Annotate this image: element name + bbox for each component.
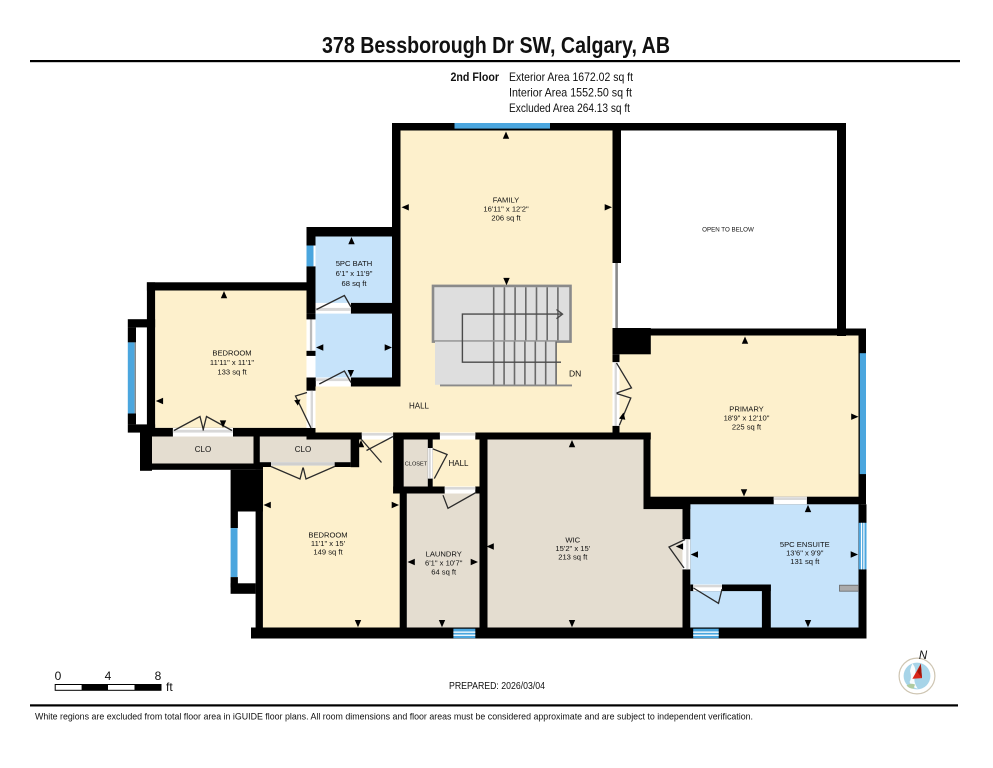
- svg-text:BEDROOM: BEDROOM: [212, 349, 251, 358]
- svg-text:4: 4: [105, 669, 112, 683]
- svg-text:0: 0: [55, 669, 62, 683]
- svg-text:133 sq ft: 133 sq ft: [217, 368, 247, 377]
- svg-text:CLOSET: CLOSET: [405, 462, 428, 468]
- svg-text:6'1" x 10'7": 6'1" x 10'7": [425, 559, 463, 568]
- svg-text:DN: DN: [569, 369, 581, 379]
- svg-text:HALL: HALL: [409, 402, 430, 411]
- svg-text:Excluded Area 264.13 sq ft: Excluded Area 264.13 sq ft: [509, 101, 631, 115]
- svg-text:CLO: CLO: [195, 445, 211, 454]
- svg-text:OPEN TO BELOW: OPEN TO BELOW: [702, 227, 754, 234]
- svg-text:2nd Floor: 2nd Floor: [451, 70, 500, 84]
- svg-text:ft: ft: [166, 680, 173, 694]
- svg-text:213 sq ft: 213 sq ft: [558, 553, 588, 562]
- svg-text:149 sq ft: 149 sq ft: [313, 548, 343, 557]
- svg-text:5PC BATH: 5PC BATH: [336, 259, 373, 268]
- svg-text:131 sq ft: 131 sq ft: [790, 557, 820, 566]
- svg-text:Interior Area 1552.50 sq ft: Interior Area 1552.50 sq ft: [509, 86, 633, 100]
- svg-text:White regions are excluded fro: White regions are excluded from total fl…: [35, 712, 753, 722]
- svg-text:8: 8: [155, 669, 162, 683]
- svg-text:PRIMARY: PRIMARY: [729, 405, 763, 414]
- svg-text:CLO: CLO: [295, 445, 311, 454]
- svg-text:18'9" x 12'10": 18'9" x 12'10": [724, 414, 770, 423]
- svg-text:11'11" x 11'1": 11'11" x 11'1": [210, 358, 254, 367]
- svg-text:225 sq ft: 225 sq ft: [732, 423, 762, 432]
- svg-text:PREPARED: 2026/03/04: PREPARED: 2026/03/04: [449, 680, 545, 692]
- svg-text:FAMILY: FAMILY: [493, 196, 519, 205]
- svg-text:HALL: HALL: [448, 459, 469, 468]
- svg-text:68 sq ft: 68 sq ft: [342, 279, 368, 288]
- svg-text:378 Bessborough Dr SW, Calgary: 378 Bessborough Dr SW, Calgary, AB: [322, 32, 670, 58]
- svg-text:Exterior Area 1672.02 sq ft: Exterior Area 1672.02 sq ft: [509, 70, 634, 84]
- svg-text:16'11" x 12'2": 16'11" x 12'2": [483, 205, 529, 214]
- svg-text:206 sq ft: 206 sq ft: [491, 214, 521, 223]
- svg-text:LAUNDRY: LAUNDRY: [426, 550, 462, 559]
- svg-text:6'1" x 11'9": 6'1" x 11'9": [336, 269, 373, 278]
- svg-text:N: N: [919, 650, 928, 662]
- svg-text:64 sq ft: 64 sq ft: [431, 568, 457, 577]
